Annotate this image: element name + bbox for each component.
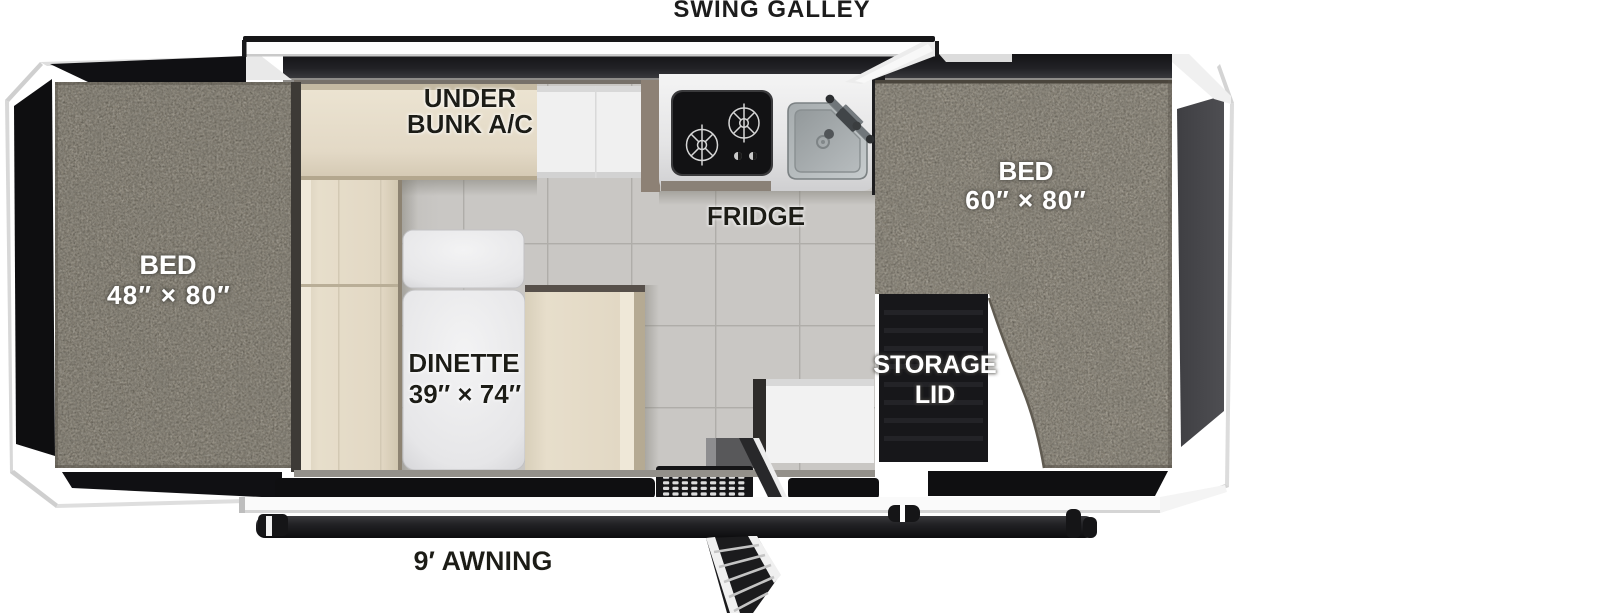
svg-text:BED: BED	[139, 250, 196, 280]
svg-text:39″ × 74″: 39″ × 74″	[409, 379, 521, 409]
svg-text:LID: LID	[915, 381, 955, 409]
svg-text:BED: BED	[999, 156, 1054, 186]
svg-text:SWING GALLEY: SWING GALLEY	[673, 0, 870, 23]
svg-text:FRIDGE: FRIDGE	[707, 201, 805, 231]
svg-text:STORAGE: STORAGE	[873, 351, 996, 379]
svg-text:DINETTE: DINETTE	[408, 348, 519, 378]
svg-text:BUNK A/C: BUNK A/C	[407, 109, 533, 139]
svg-text:48″ × 80″: 48″ × 80″	[107, 280, 231, 310]
svg-text:9′ AWNING: 9′ AWNING	[414, 546, 553, 576]
svg-text:60″ × 80″: 60″ × 80″	[965, 185, 1086, 215]
